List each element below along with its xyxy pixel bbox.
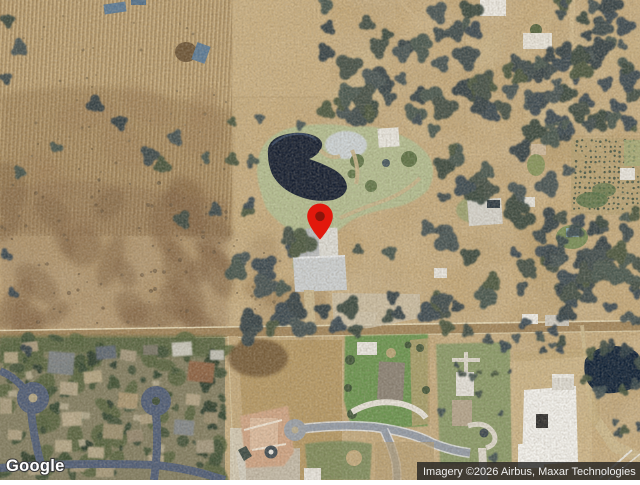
svg-text:Google: Google — [6, 457, 65, 475]
svg-text:Imagery ©2026 Airbus, Maxar Te: Imagery ©2026 Airbus, Maxar Technologies — [423, 466, 636, 478]
